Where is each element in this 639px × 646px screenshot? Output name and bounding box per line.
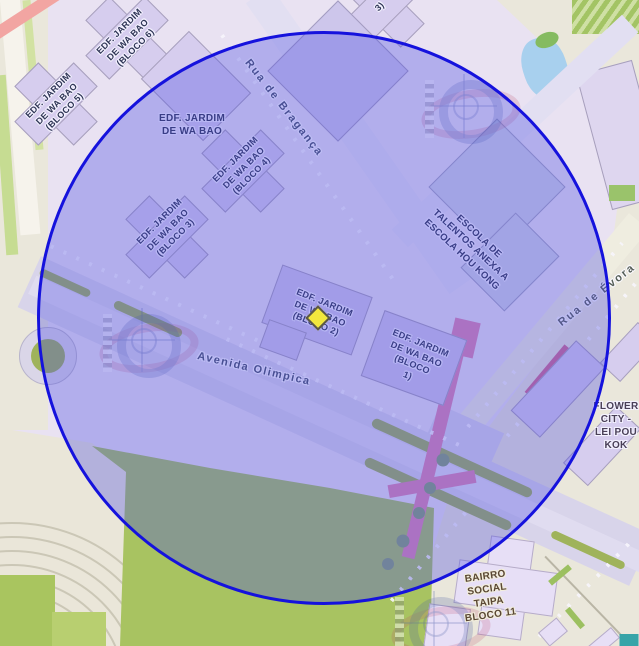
label-bairro-social: BAIRRO SOCIAL TAIPA BLOCO 11 — [459, 567, 518, 626]
northeast-green — [609, 185, 635, 201]
map-canvas[interactable]: EDF. JARDIM DE WA BAO (BLOCO 6) EDF. JAR… — [0, 0, 639, 646]
label-flower-city: FLOWER CITY - LEI POU KOK — [593, 400, 639, 452]
teal-structure — [620, 634, 639, 646]
